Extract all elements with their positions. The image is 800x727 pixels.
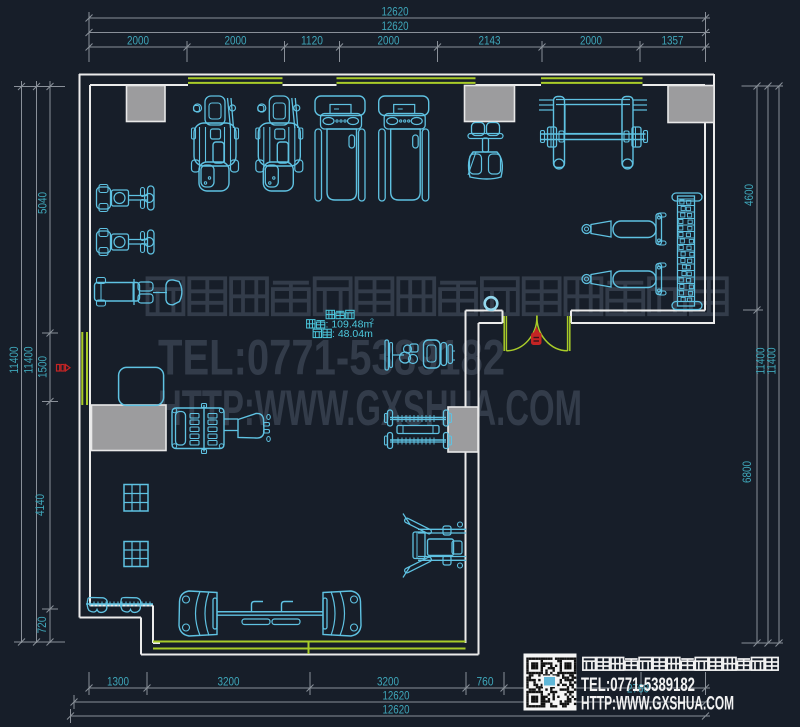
svg-text:11400: 11400: [24, 347, 36, 374]
svg-text:11400: 11400: [767, 348, 779, 375]
svg-text:2000: 2000: [127, 36, 149, 48]
svg-text:2000: 2000: [378, 36, 400, 48]
svg-text:1500: 1500: [38, 356, 50, 378]
svg-text:2000: 2000: [580, 36, 602, 48]
svg-text:5040: 5040: [38, 192, 50, 214]
svg-text:1300: 1300: [107, 677, 129, 689]
svg-text:12620: 12620: [382, 7, 409, 19]
svg-text:12620: 12620: [382, 21, 409, 33]
svg-text:12620: 12620: [383, 705, 410, 717]
svg-text:3200: 3200: [218, 677, 240, 689]
svg-text:2143: 2143: [479, 36, 501, 48]
svg-text:1357: 1357: [662, 36, 684, 48]
svg-text:12620: 12620: [383, 691, 410, 703]
svg-text:760: 760: [477, 677, 494, 689]
svg-text:2: 2: [370, 319, 374, 326]
svg-text:1120: 1120: [301, 36, 323, 48]
svg-text:: 48.04m: : 48.04m: [332, 328, 373, 340]
svg-text:720: 720: [37, 617, 49, 634]
svg-text:3200: 3200: [377, 677, 399, 689]
svg-text:4140: 4140: [35, 494, 47, 516]
svg-text:2000: 2000: [225, 36, 247, 48]
svg-text:6800: 6800: [742, 461, 754, 483]
svg-text:HTTP:WWW.GXSHUA.COM: HTTP:WWW.GXSHUA.COM: [581, 694, 734, 715]
svg-text:4600: 4600: [744, 184, 756, 206]
svg-text:11400: 11400: [9, 347, 21, 374]
